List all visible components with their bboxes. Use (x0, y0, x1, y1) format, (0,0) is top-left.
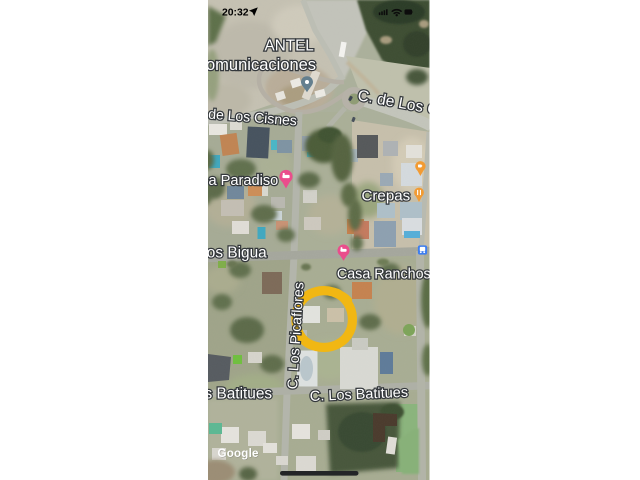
svg-text:os Bigua: os Bigua (207, 244, 267, 261)
svg-text:20:32: 20:32 (222, 8, 249, 19)
svg-text:ANTEL: ANTEL (265, 38, 314, 55)
svg-text:s Batitues: s Batitues (205, 386, 273, 403)
svg-text:Crepas: Crepas (362, 188, 411, 205)
svg-text:Casa Ranchos: Casa Ranchos (337, 267, 431, 283)
svg-text:Google: Google (218, 447, 259, 460)
svg-text:omunicaciones: omunicaciones (206, 56, 316, 74)
svg-text:a Paradiso: a Paradiso (209, 173, 279, 189)
